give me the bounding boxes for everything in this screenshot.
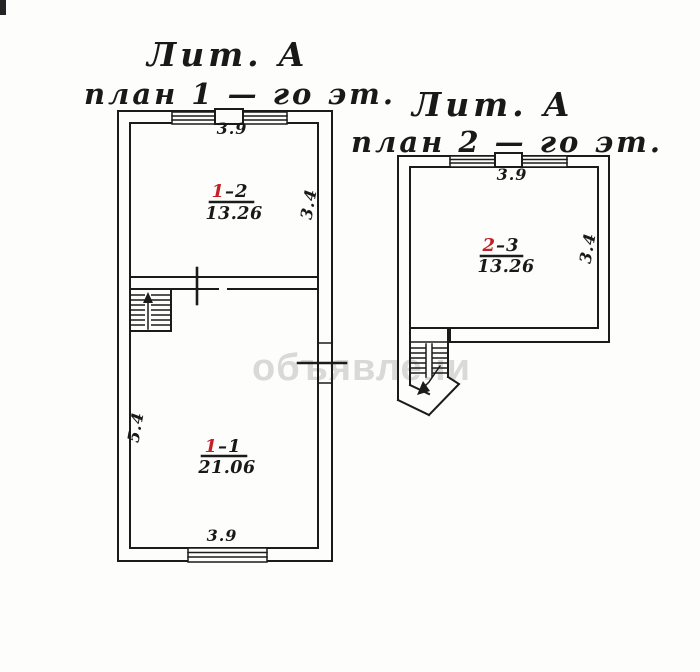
svg-text:1–2: 1–2 bbox=[211, 181, 248, 202]
floor-plan-right: Лит. А план 2 — го эт. bbox=[351, 85, 663, 415]
room-label: 2–3 13.26 bbox=[477, 235, 534, 277]
stairs-up bbox=[130, 289, 171, 331]
room-number-floor: 1 bbox=[211, 181, 225, 202]
room-number-rest: –3 bbox=[496, 235, 520, 256]
room-area: 21.06 bbox=[197, 458, 255, 478]
room-label: 1–1 21.06 bbox=[197, 436, 255, 478]
window-bottom bbox=[188, 548, 267, 562]
outer-wall bbox=[118, 111, 332, 561]
interior-wall bbox=[130, 268, 318, 304]
room-number-rest: –1 bbox=[218, 436, 242, 457]
room-number-floor: 2 bbox=[481, 235, 496, 256]
dimension-label-bottom: 3.9 bbox=[207, 526, 238, 545]
scan-artifact bbox=[0, 0, 6, 15]
floor-plan-drawing: объявлени Лит. А план 1 — го эт. bbox=[0, 0, 700, 672]
room-area: 13.26 bbox=[205, 204, 262, 224]
room-number-rest: –2 bbox=[225, 181, 249, 202]
plan-title: Лит. А bbox=[145, 35, 309, 74]
dimension-label-top: 3.9 bbox=[217, 119, 248, 138]
floor-plan-left: Лит. А план 1 — го эт. bbox=[84, 35, 396, 562]
dimension-label-right: 3.4 bbox=[576, 231, 600, 265]
room-label: 1–2 13.26 bbox=[205, 181, 262, 224]
floor-plan-scan: объявлени Лит. А план 1 — го эт. bbox=[0, 0, 700, 672]
dimension-label-left: 5.4 bbox=[124, 410, 148, 444]
svg-text:2–3: 2–3 bbox=[481, 235, 519, 256]
svg-text:1–1: 1–1 bbox=[204, 436, 241, 457]
plan-title: Лит. А bbox=[410, 85, 574, 124]
plan-subtitle: план 1 — го эт. bbox=[84, 77, 396, 111]
dimension-label-top: 3.9 bbox=[497, 165, 528, 184]
room-area: 13.26 bbox=[477, 257, 534, 277]
room-number-floor: 1 bbox=[204, 436, 218, 457]
